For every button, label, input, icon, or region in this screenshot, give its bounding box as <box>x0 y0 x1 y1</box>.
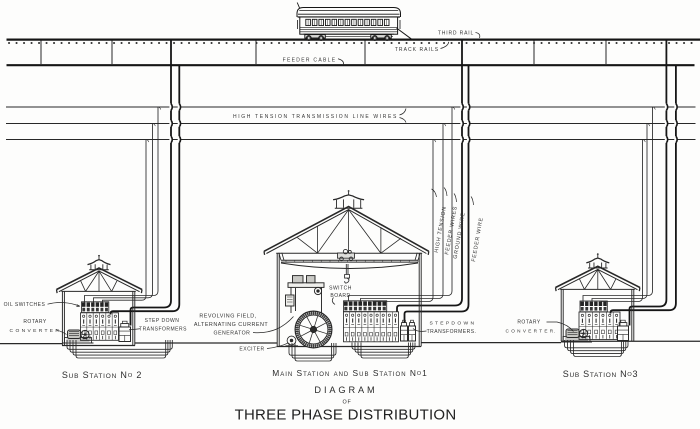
svg-text:DIAGRAM: DIAGRAM <box>314 385 377 395</box>
svg-text:FEEDER CABLE: FEEDER CABLE <box>283 57 337 63</box>
svg-text:OF: OF <box>342 400 351 406</box>
svg-text:GENERATOR: GENERATOR <box>214 331 251 337</box>
svg-text:C O N V E R T E R.: C O N V E R T E R. <box>506 329 556 334</box>
svg-text:THIRD RAIL: THIRD RAIL <box>438 31 474 37</box>
svg-text:HIGH TENSION TRANSMISSION LINE: HIGH TENSION TRANSMISSION LINE WIRES <box>233 114 398 120</box>
svg-text:OIL SWITCHES: OIL SWITCHES <box>4 302 46 308</box>
svg-text:ALTERNATING CURRENT: ALTERNATING CURRENT <box>194 322 268 328</box>
svg-text:C O N V E R T E R: C O N V E R T E R <box>10 328 60 334</box>
svg-text:STEP DOWN: STEP DOWN <box>145 318 180 324</box>
svg-text:ROTARY: ROTARY <box>23 319 47 325</box>
svg-text:SUB STATION NO 2: SUB STATION NO 2 <box>62 370 142 380</box>
svg-text:SWITCH: SWITCH <box>329 286 352 292</box>
svg-text:THREE PHASE DISTRIBUTION: THREE PHASE DISTRIBUTION <box>235 407 457 424</box>
svg-text:EXCITER: EXCITER <box>239 347 264 353</box>
svg-text:REVOLVING FIELD,: REVOLVING FIELD, <box>199 314 256 320</box>
svg-text:TRANSFORMERS: TRANSFORMERS <box>139 327 187 333</box>
svg-text:TRANSFORMERS.: TRANSFORMERS. <box>427 329 477 335</box>
svg-text:TRACK RAILS: TRACK RAILS <box>395 47 439 53</box>
svg-text:MAIN STATION AND SUB STATION N: MAIN STATION AND SUB STATION NO1 <box>272 368 428 378</box>
svg-text:S T E P D O W N: S T E P D O W N <box>429 321 474 327</box>
svg-text:ROTARY: ROTARY <box>517 320 541 326</box>
svg-text:FEEDER WIRE: FEEDER WIRE <box>471 217 485 262</box>
svg-text:SUB STATION NO3: SUB STATION NO3 <box>563 369 638 379</box>
